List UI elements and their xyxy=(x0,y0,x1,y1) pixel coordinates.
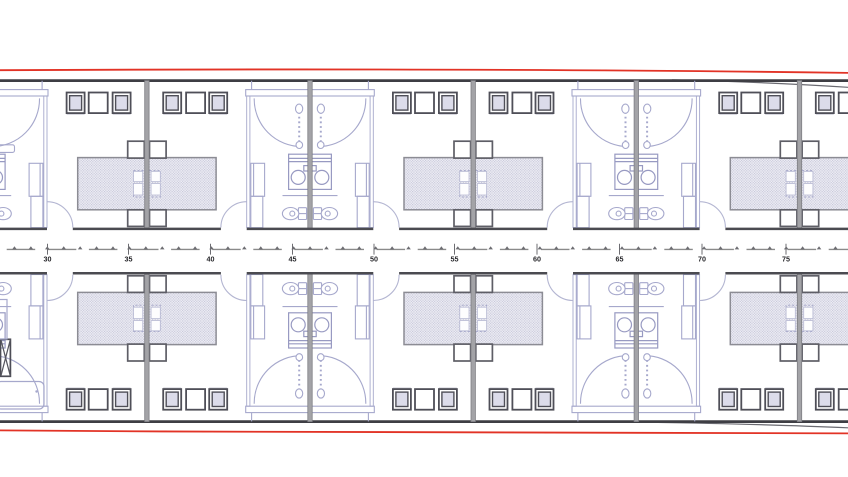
svg-text:75: 75 xyxy=(782,255,790,264)
svg-text:55: 55 xyxy=(451,255,459,264)
svg-text:65: 65 xyxy=(616,255,624,264)
svg-text:35: 35 xyxy=(125,255,133,264)
svg-text:70: 70 xyxy=(698,255,706,264)
svg-text:45: 45 xyxy=(289,255,297,264)
svg-text:40: 40 xyxy=(207,255,215,264)
svg-text:30: 30 xyxy=(44,255,52,264)
svg-text:50: 50 xyxy=(370,255,378,264)
svg-text:60: 60 xyxy=(533,255,541,264)
